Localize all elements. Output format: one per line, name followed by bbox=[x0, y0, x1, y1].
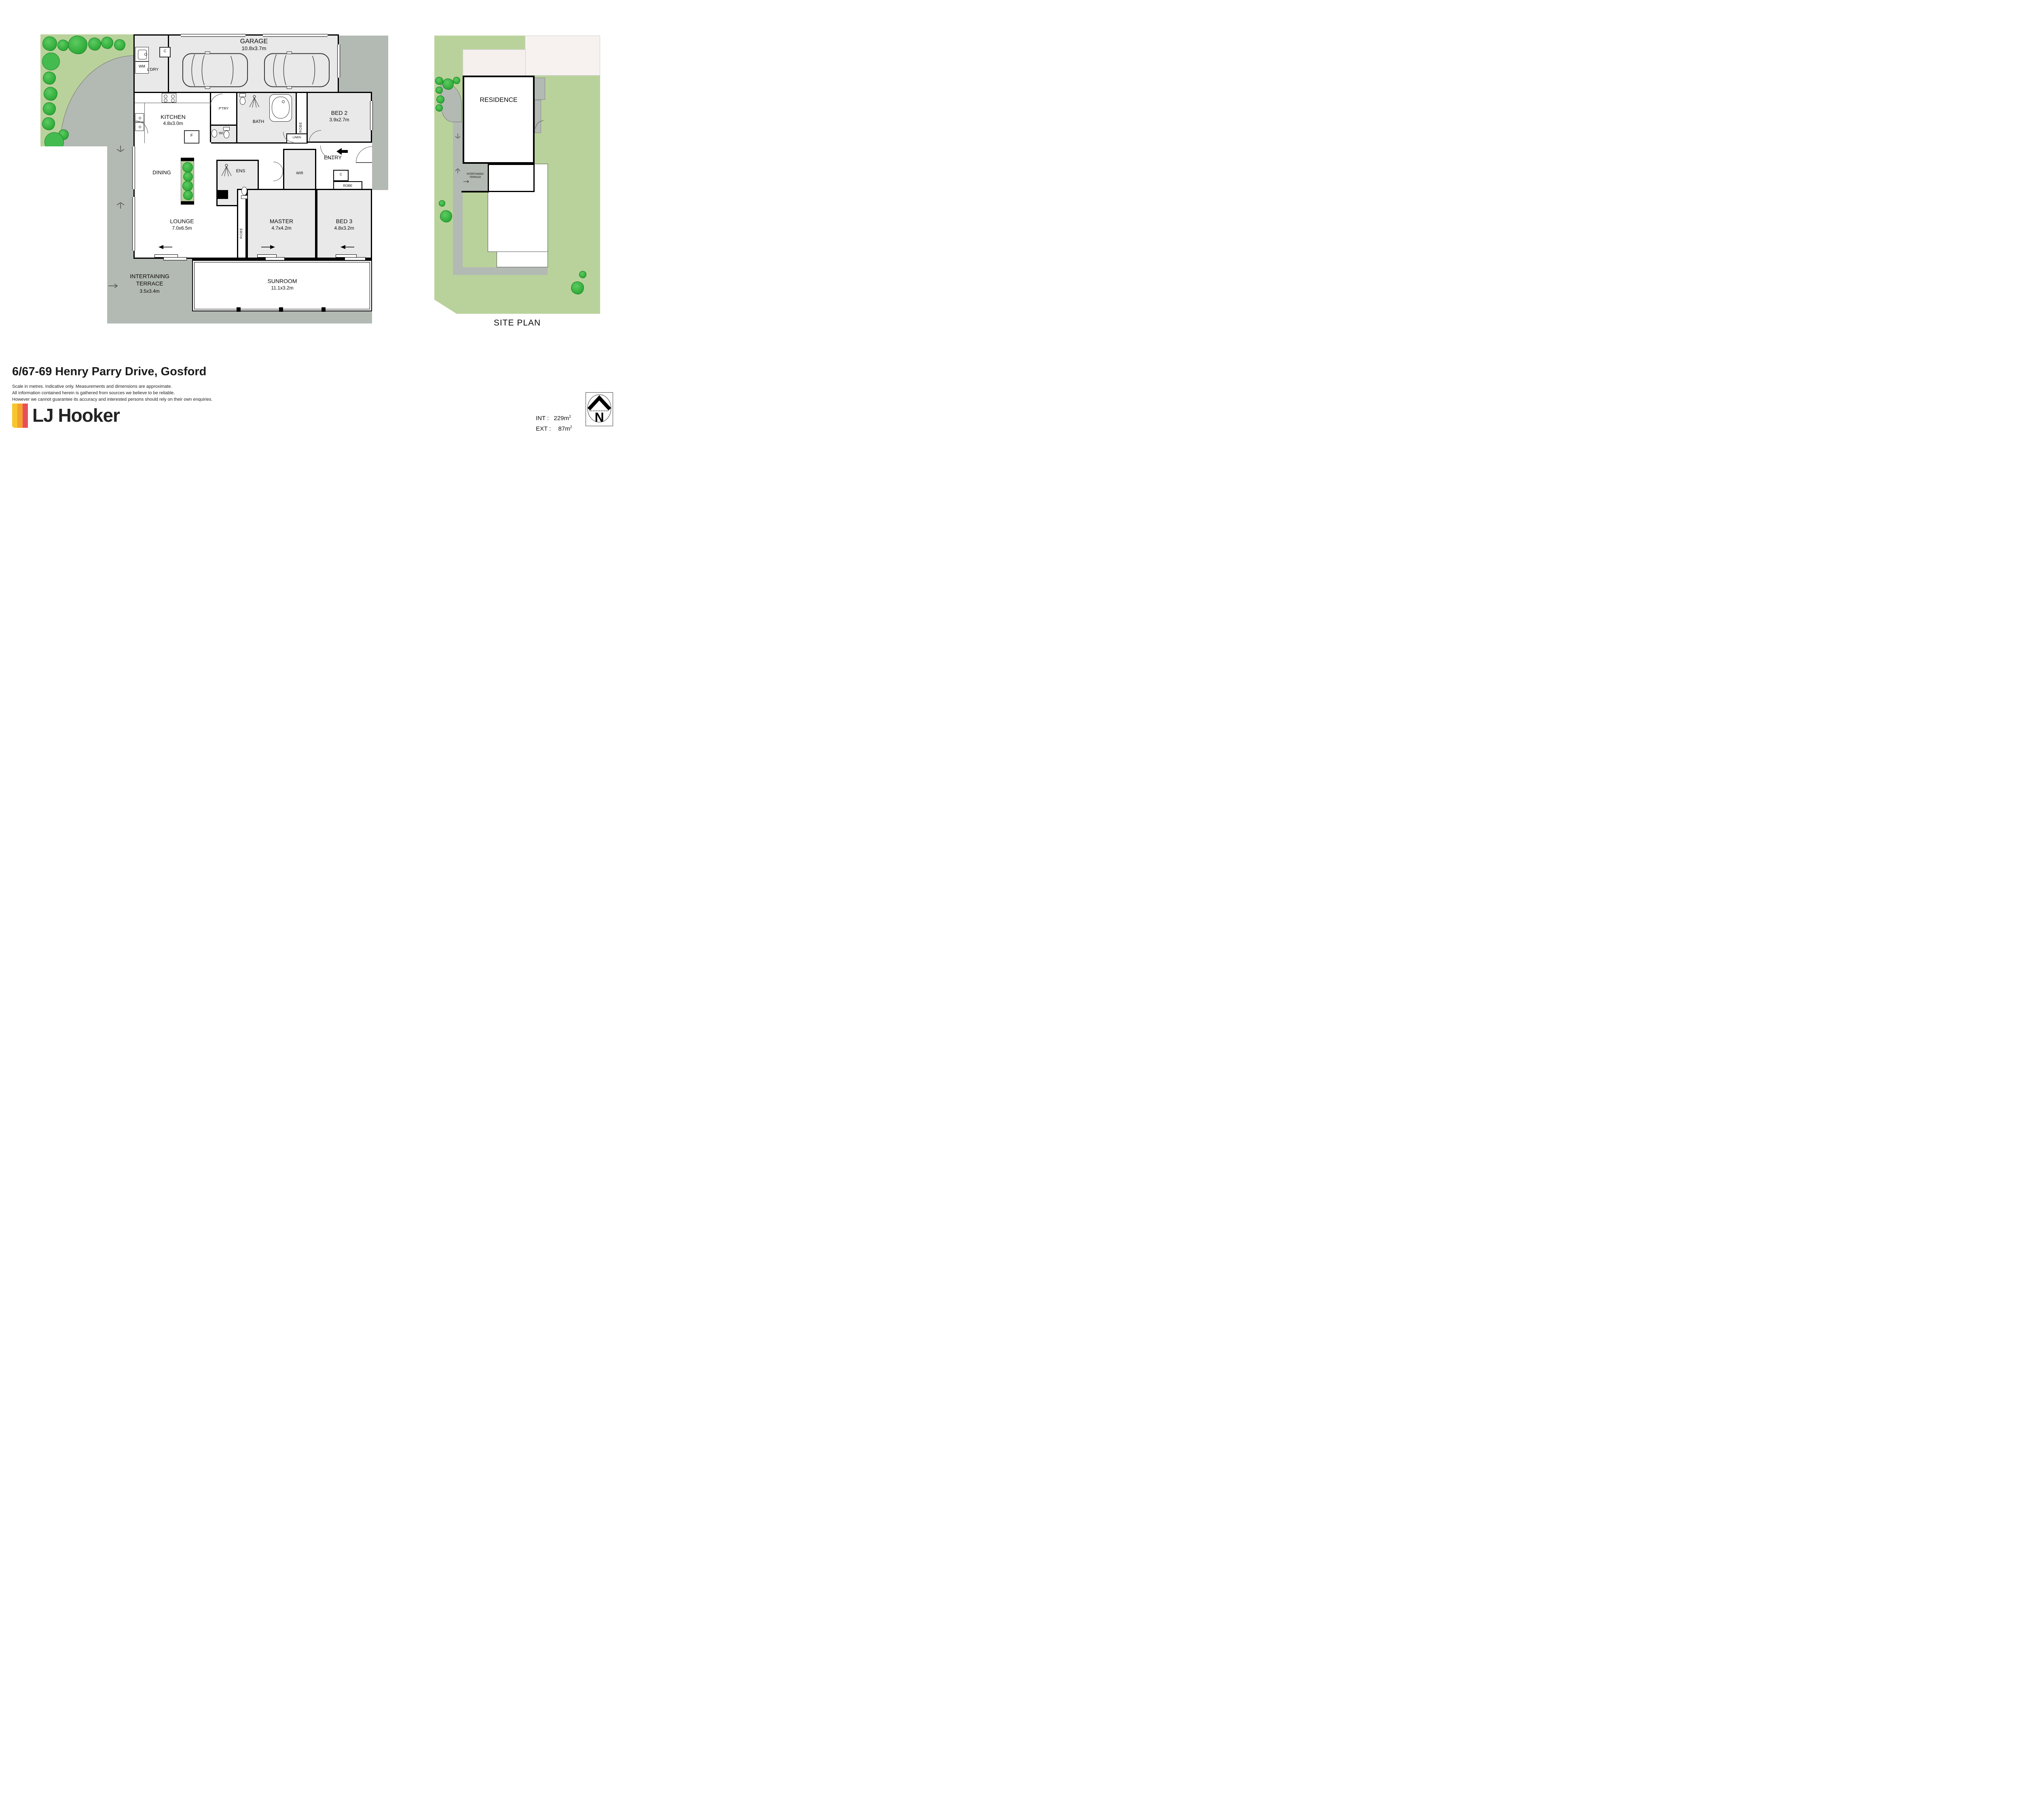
lounge-dims: 7.0x6.5m bbox=[150, 226, 214, 231]
brand-name: LJ Hooker bbox=[32, 404, 120, 426]
laundry-tub-icon bbox=[135, 47, 149, 61]
sunroom-post bbox=[279, 307, 283, 312]
shrub-icon bbox=[43, 72, 56, 85]
wc-label: WC bbox=[214, 132, 230, 135]
wir-label: WIR bbox=[290, 171, 310, 175]
slide-arrow-left-icon bbox=[341, 245, 354, 249]
ptry-label: P'TRY bbox=[211, 107, 237, 110]
neighbour-band bbox=[463, 49, 526, 76]
slide-arrow-left-icon bbox=[159, 245, 172, 249]
page-title: 6/67-69 Henry Parry Drive, Gosford bbox=[12, 365, 206, 378]
entry-label: ENTRY bbox=[319, 155, 347, 161]
master-name: MASTER bbox=[249, 218, 314, 224]
area-ext: EXT : 87m2 bbox=[536, 425, 572, 432]
kitchen-dims: 4.8x3.0m bbox=[141, 121, 205, 126]
shrub-icon bbox=[88, 38, 101, 51]
bed3-slider bbox=[345, 257, 366, 260]
shrub-icon bbox=[182, 181, 193, 191]
toilet-icon bbox=[241, 187, 247, 200]
garage-door bbox=[181, 34, 245, 37]
lounge-slider bbox=[163, 257, 187, 260]
garden-path-curve bbox=[60, 55, 133, 146]
area-sup: 2 bbox=[570, 425, 572, 429]
sunroom-dims: 11.1x3.2m bbox=[246, 285, 319, 291]
garage-door bbox=[263, 34, 328, 37]
bed2-window bbox=[370, 101, 373, 130]
path-arrow-up-icon bbox=[454, 168, 462, 173]
ens-wall-chunk bbox=[218, 190, 228, 199]
bathtub-icon bbox=[269, 94, 292, 122]
site-courtyard-white bbox=[497, 252, 548, 267]
disclaimer-line: However we cannot guarantee its accuracy… bbox=[12, 397, 212, 402]
shrub-icon bbox=[42, 36, 57, 51]
slide-arrow-right-icon bbox=[261, 245, 275, 249]
planter-cap bbox=[181, 201, 194, 205]
car-icon bbox=[263, 51, 331, 89]
north-arrow-box: N bbox=[586, 392, 613, 426]
shrub-icon bbox=[442, 78, 454, 90]
shrub-icon bbox=[101, 37, 113, 49]
site-residence-label: RESIDENCE bbox=[466, 97, 531, 104]
siteplan-title: SITE PLAN bbox=[434, 319, 600, 328]
shrub-icon bbox=[114, 39, 125, 51]
shrub-icon bbox=[42, 117, 55, 130]
shrub-icon bbox=[571, 281, 584, 294]
garage-window bbox=[337, 44, 340, 78]
site-residence bbox=[463, 76, 535, 164]
area-int-value: 229 bbox=[554, 415, 564, 422]
area-int: INT : 229m2 bbox=[536, 414, 571, 422]
area-ext-value: 87 bbox=[558, 425, 565, 432]
linen-label: LINEN bbox=[286, 136, 307, 139]
robe-master-label: ROBE bbox=[239, 210, 243, 239]
disclaimer-line: Scale in metres. Indicative only. Measur… bbox=[12, 384, 172, 389]
porch-door-leaf bbox=[356, 162, 372, 163]
robe-bed3-label: ROBE bbox=[333, 184, 362, 188]
disclaimer-line: All information contained herein is gath… bbox=[12, 391, 175, 395]
c-hall-label: C bbox=[333, 173, 349, 176]
logo-stripe-orange bbox=[17, 404, 23, 428]
site-sunroom bbox=[488, 164, 535, 192]
site-path-row bbox=[453, 267, 548, 275]
logo-stripe-red bbox=[23, 404, 28, 428]
ldry-label: L'DRY bbox=[141, 68, 165, 72]
shrub-icon bbox=[579, 271, 586, 278]
site-path-column bbox=[453, 122, 463, 275]
dining-window bbox=[132, 146, 135, 189]
shrub-icon bbox=[440, 210, 452, 222]
brand-logo: LJ Hooker bbox=[12, 404, 158, 429]
sunroom-post bbox=[237, 307, 241, 312]
bed2-dims: 3.9x2.7m bbox=[311, 117, 368, 123]
terrace-dims: 3.5x3.4m bbox=[114, 289, 185, 294]
site-terrace-wall bbox=[461, 191, 489, 192]
shrub-icon bbox=[436, 104, 443, 112]
toilet-icon bbox=[239, 93, 246, 106]
shrub-icon bbox=[453, 77, 460, 84]
site-terrace-label-1: INTERTAINING bbox=[463, 173, 487, 175]
ens-label: ENS bbox=[228, 169, 253, 174]
sunroom-post bbox=[321, 307, 326, 312]
bed3-name: BED 3 bbox=[318, 218, 370, 224]
area-ext-label: EXT : bbox=[536, 425, 551, 432]
logo-stripe-yellow bbox=[12, 404, 17, 428]
garage-dims: 10.8x3.7m bbox=[214, 46, 294, 51]
master-slider bbox=[265, 257, 285, 260]
site-terrace-label-2: TERRACE bbox=[463, 176, 487, 179]
shrub-icon bbox=[44, 87, 57, 101]
stove-icon bbox=[162, 93, 176, 103]
shrub-icon bbox=[183, 190, 193, 200]
area-unit: m bbox=[565, 425, 570, 432]
shrub-icon bbox=[57, 40, 69, 51]
path-arrow-down-icon bbox=[454, 133, 462, 139]
car-icon bbox=[181, 51, 249, 89]
planter-cap bbox=[181, 158, 194, 161]
robe-bed2-label: ROBE bbox=[299, 104, 302, 133]
c-ldry-label: C bbox=[159, 49, 171, 53]
driveway-right-lower bbox=[372, 92, 388, 144]
shrub-icon bbox=[68, 36, 87, 54]
floorplan-page: WM C F bbox=[0, 0, 626, 442]
path-arrow-up-icon bbox=[114, 201, 127, 209]
shrub-icon bbox=[436, 95, 444, 104]
area-int-label: INT : bbox=[536, 415, 549, 422]
shrub-icon bbox=[43, 102, 56, 115]
neighbour-band bbox=[525, 36, 600, 76]
terrace-arrow-icon bbox=[463, 180, 470, 184]
north-arrow-icon: N bbox=[586, 393, 612, 425]
shrub-icon bbox=[435, 77, 443, 85]
garage-name: GARAGE bbox=[214, 38, 294, 45]
dining-label: DINING bbox=[140, 170, 184, 175]
kitchen-name: KITCHEN bbox=[141, 114, 205, 120]
lounge-name: LOUNGE bbox=[150, 218, 214, 224]
kitchen-bench-line bbox=[135, 103, 211, 103]
driveway-right bbox=[339, 36, 388, 93]
area-sup: 2 bbox=[569, 414, 571, 419]
shower-icon bbox=[247, 94, 261, 109]
terrace-name-2: TERRACE bbox=[114, 281, 185, 287]
fridge-label: F bbox=[184, 134, 199, 138]
north-letter: N bbox=[594, 410, 604, 425]
bed2-name: BED 2 bbox=[311, 110, 368, 116]
lounge-window bbox=[132, 197, 135, 251]
site-residence-gray bbox=[534, 78, 545, 100]
master-dims: 4.7x4.2m bbox=[249, 226, 314, 231]
garden-bed bbox=[40, 34, 133, 146]
shrub-icon bbox=[183, 172, 193, 182]
shrub-icon bbox=[436, 87, 443, 94]
entry-arrow-icon bbox=[336, 148, 348, 155]
bath-label: BATH bbox=[244, 120, 273, 125]
sunroom-name: SUNROOM bbox=[246, 278, 319, 284]
room-lounge bbox=[133, 207, 237, 259]
area-unit: m bbox=[564, 415, 569, 422]
bottom-path bbox=[107, 311, 372, 323]
bed3-dims: 4.8x3.2m bbox=[318, 226, 370, 231]
shrub-icon bbox=[439, 200, 445, 207]
planter bbox=[181, 161, 194, 201]
tree-icon bbox=[42, 53, 60, 70]
path-arrow-down-icon bbox=[114, 146, 127, 153]
terrace-name-1: INTERTAINING bbox=[114, 273, 185, 279]
